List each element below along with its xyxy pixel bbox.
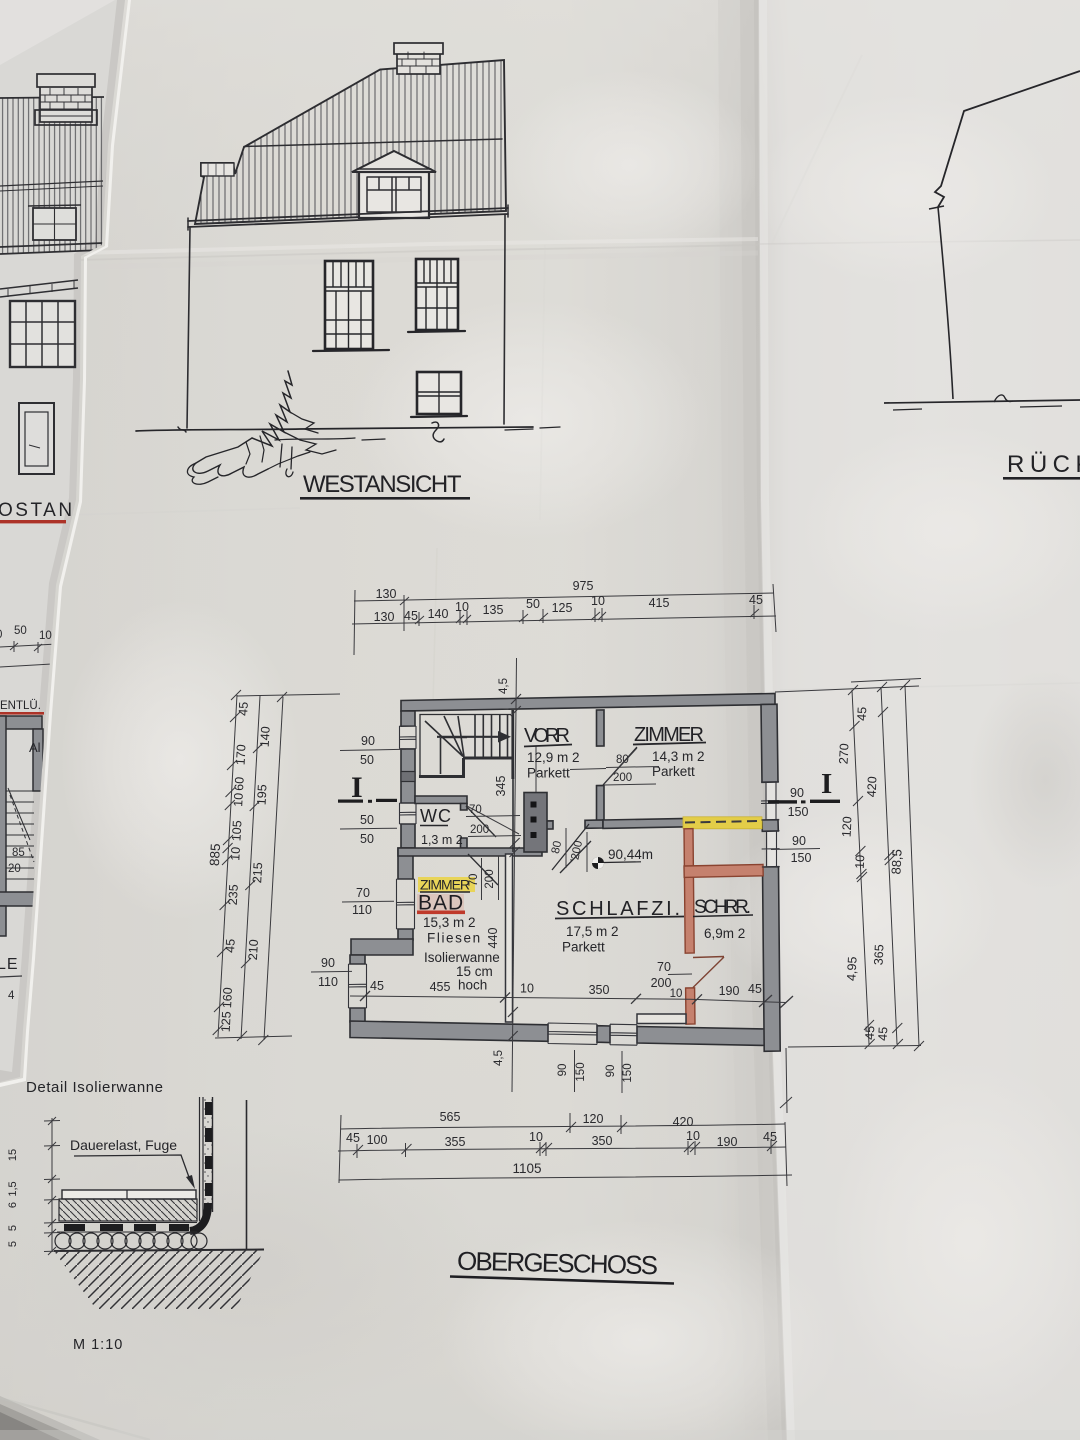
svg-text:125: 125 bbox=[219, 1011, 234, 1033]
svg-text:70: 70 bbox=[657, 960, 671, 974]
svg-text:Al: Al bbox=[29, 740, 41, 755]
svg-text:90: 90 bbox=[792, 834, 806, 848]
svg-text:150: 150 bbox=[788, 805, 809, 819]
svg-text:12,9 m 2: 12,9 m 2 bbox=[527, 750, 580, 765]
svg-text:50: 50 bbox=[360, 753, 374, 767]
svg-text:45: 45 bbox=[855, 706, 870, 721]
svg-text:120: 120 bbox=[839, 816, 854, 838]
svg-text:I: I bbox=[821, 768, 832, 800]
svg-text:RÜCK: RÜCK bbox=[1007, 451, 1080, 478]
svg-text:6,9m 2: 6,9m 2 bbox=[704, 926, 745, 941]
svg-text:Fliesen: Fliesen bbox=[427, 931, 482, 946]
svg-text:10: 10 bbox=[231, 792, 246, 807]
svg-text:50: 50 bbox=[526, 597, 540, 611]
svg-text:LE: LE bbox=[0, 956, 19, 973]
svg-text:90: 90 bbox=[557, 1064, 569, 1077]
svg-text:1105: 1105 bbox=[512, 1161, 541, 1176]
svg-text:110: 110 bbox=[318, 975, 338, 989]
svg-text:WC: WC bbox=[420, 806, 452, 826]
svg-text:420: 420 bbox=[673, 1115, 694, 1129]
svg-text:135: 135 bbox=[483, 603, 504, 617]
svg-text:15: 15 bbox=[7, 1149, 19, 1161]
svg-text:5: 5 bbox=[7, 1241, 19, 1247]
svg-text:365: 365 bbox=[871, 944, 886, 966]
svg-text:90: 90 bbox=[790, 786, 804, 800]
svg-text:0: 0 bbox=[0, 629, 2, 641]
svg-text:Dauerelast, Fuge: Dauerelast, Fuge bbox=[70, 1137, 177, 1153]
svg-text:5: 5 bbox=[7, 1225, 19, 1231]
svg-text:M 1:10: M 1:10 bbox=[73, 1337, 123, 1353]
svg-text:6: 6 bbox=[7, 1202, 19, 1208]
svg-text:50: 50 bbox=[14, 625, 27, 637]
svg-text:160: 160 bbox=[220, 987, 235, 1009]
svg-text:90: 90 bbox=[605, 1065, 617, 1078]
svg-text:10: 10 bbox=[670, 988, 683, 1000]
svg-text:90: 90 bbox=[361, 734, 375, 748]
svg-text:17,5 m 2: 17,5 m 2 bbox=[566, 924, 619, 939]
svg-text:270: 270 bbox=[836, 743, 851, 765]
svg-text:88,5: 88,5 bbox=[888, 849, 904, 875]
svg-text:200: 200 bbox=[613, 772, 632, 784]
svg-text:190: 190 bbox=[719, 984, 740, 998]
svg-text:20: 20 bbox=[8, 863, 21, 875]
svg-text:ZIMMER: ZIMMER bbox=[420, 877, 470, 893]
svg-text:140: 140 bbox=[258, 726, 273, 748]
svg-text:150: 150 bbox=[791, 851, 812, 865]
svg-text:150: 150 bbox=[622, 1063, 634, 1082]
svg-text:90: 90 bbox=[321, 956, 335, 970]
svg-text:10: 10 bbox=[520, 982, 534, 996]
svg-text:440: 440 bbox=[486, 928, 500, 949]
svg-text:10: 10 bbox=[39, 630, 52, 642]
svg-text:130: 130 bbox=[376, 587, 397, 601]
svg-text:Detail Isolierwanne: Detail Isolierwanne bbox=[26, 1079, 163, 1096]
svg-text:85: 85 bbox=[12, 847, 25, 859]
svg-text:15,3 m 2: 15,3 m 2 bbox=[423, 915, 476, 930]
svg-text:10: 10 bbox=[686, 1129, 700, 1143]
svg-text:45: 45 bbox=[763, 1130, 777, 1144]
svg-text:I: I bbox=[351, 771, 363, 804]
svg-text:10: 10 bbox=[455, 600, 469, 614]
svg-text:885: 885 bbox=[207, 843, 223, 866]
svg-text:200: 200 bbox=[470, 824, 489, 836]
svg-text:1,3 m 2: 1,3 m 2 bbox=[421, 833, 463, 847]
svg-text:45: 45 bbox=[749, 593, 763, 607]
svg-text:10: 10 bbox=[529, 1130, 543, 1144]
svg-text:350: 350 bbox=[589, 983, 610, 997]
svg-text:110: 110 bbox=[352, 903, 372, 917]
svg-text:140: 140 bbox=[428, 607, 449, 621]
svg-text:OBERGESCHOSS: OBERGESCHOSS bbox=[457, 1246, 663, 1281]
svg-text:70: 70 bbox=[468, 874, 480, 887]
svg-text:4,95: 4,95 bbox=[844, 956, 859, 981]
svg-text:125: 125 bbox=[552, 601, 573, 615]
svg-text:ENTLÜ.: ENTLÜ. bbox=[0, 700, 41, 712]
svg-text:4,5: 4,5 bbox=[498, 678, 510, 694]
svg-text:60: 60 bbox=[232, 776, 247, 791]
svg-text:190: 190 bbox=[717, 1135, 738, 1149]
svg-text:130: 130 bbox=[374, 610, 395, 624]
svg-text:200: 200 bbox=[651, 976, 672, 990]
svg-text:170: 170 bbox=[233, 744, 248, 766]
svg-text:45: 45 bbox=[370, 979, 384, 993]
svg-text:50: 50 bbox=[360, 813, 374, 827]
svg-text:210: 210 bbox=[246, 939, 261, 961]
svg-text:105: 105 bbox=[229, 820, 244, 842]
svg-text:455: 455 bbox=[430, 980, 451, 994]
svg-text:10: 10 bbox=[591, 594, 605, 608]
svg-text:355: 355 bbox=[445, 1135, 466, 1149]
svg-text:235: 235 bbox=[226, 884, 241, 906]
svg-text:345: 345 bbox=[494, 776, 508, 797]
svg-text:120: 120 bbox=[583, 1112, 604, 1126]
svg-text:Parkett: Parkett bbox=[527, 766, 570, 781]
svg-text:215: 215 bbox=[250, 862, 265, 884]
svg-text:975: 975 bbox=[573, 579, 594, 593]
svg-text:45: 45 bbox=[748, 982, 762, 996]
svg-text:hoch: hoch bbox=[458, 978, 487, 993]
svg-text:VORR: VORR bbox=[524, 725, 572, 747]
svg-text:10: 10 bbox=[853, 854, 868, 869]
svg-text:10: 10 bbox=[228, 846, 243, 861]
svg-text:45: 45 bbox=[876, 1026, 891, 1041]
svg-text:200: 200 bbox=[484, 869, 496, 888]
svg-text:90,44m: 90,44m bbox=[608, 847, 653, 862]
svg-text:OSTAN: OSTAN bbox=[0, 500, 75, 521]
svg-text:420: 420 bbox=[864, 776, 879, 798]
svg-text:350: 350 bbox=[592, 1134, 613, 1148]
svg-text:4,5: 4,5 bbox=[493, 1050, 505, 1066]
svg-text:565: 565 bbox=[440, 1110, 461, 1124]
svg-text:Isolierwanne: Isolierwanne bbox=[424, 950, 500, 965]
svg-text:415: 415 bbox=[649, 596, 670, 610]
svg-text:100: 100 bbox=[367, 1133, 388, 1147]
svg-text:Parkett: Parkett bbox=[562, 940, 605, 955]
svg-text:195: 195 bbox=[254, 784, 269, 806]
svg-text:70: 70 bbox=[356, 886, 370, 900]
svg-text:4: 4 bbox=[8, 990, 15, 1002]
svg-text:45: 45 bbox=[404, 609, 418, 623]
svg-text:45: 45 bbox=[236, 701, 251, 716]
svg-text:14,3 m 2: 14,3 m 2 bbox=[652, 749, 705, 764]
svg-text:WESTANSICHT: WESTANSICHT bbox=[303, 471, 467, 498]
svg-text:1,5: 1,5 bbox=[7, 1181, 19, 1196]
svg-text:150: 150 bbox=[575, 1062, 587, 1081]
svg-text:45: 45 bbox=[223, 938, 238, 953]
svg-text:50: 50 bbox=[360, 832, 374, 846]
svg-text:45: 45 bbox=[346, 1131, 360, 1145]
